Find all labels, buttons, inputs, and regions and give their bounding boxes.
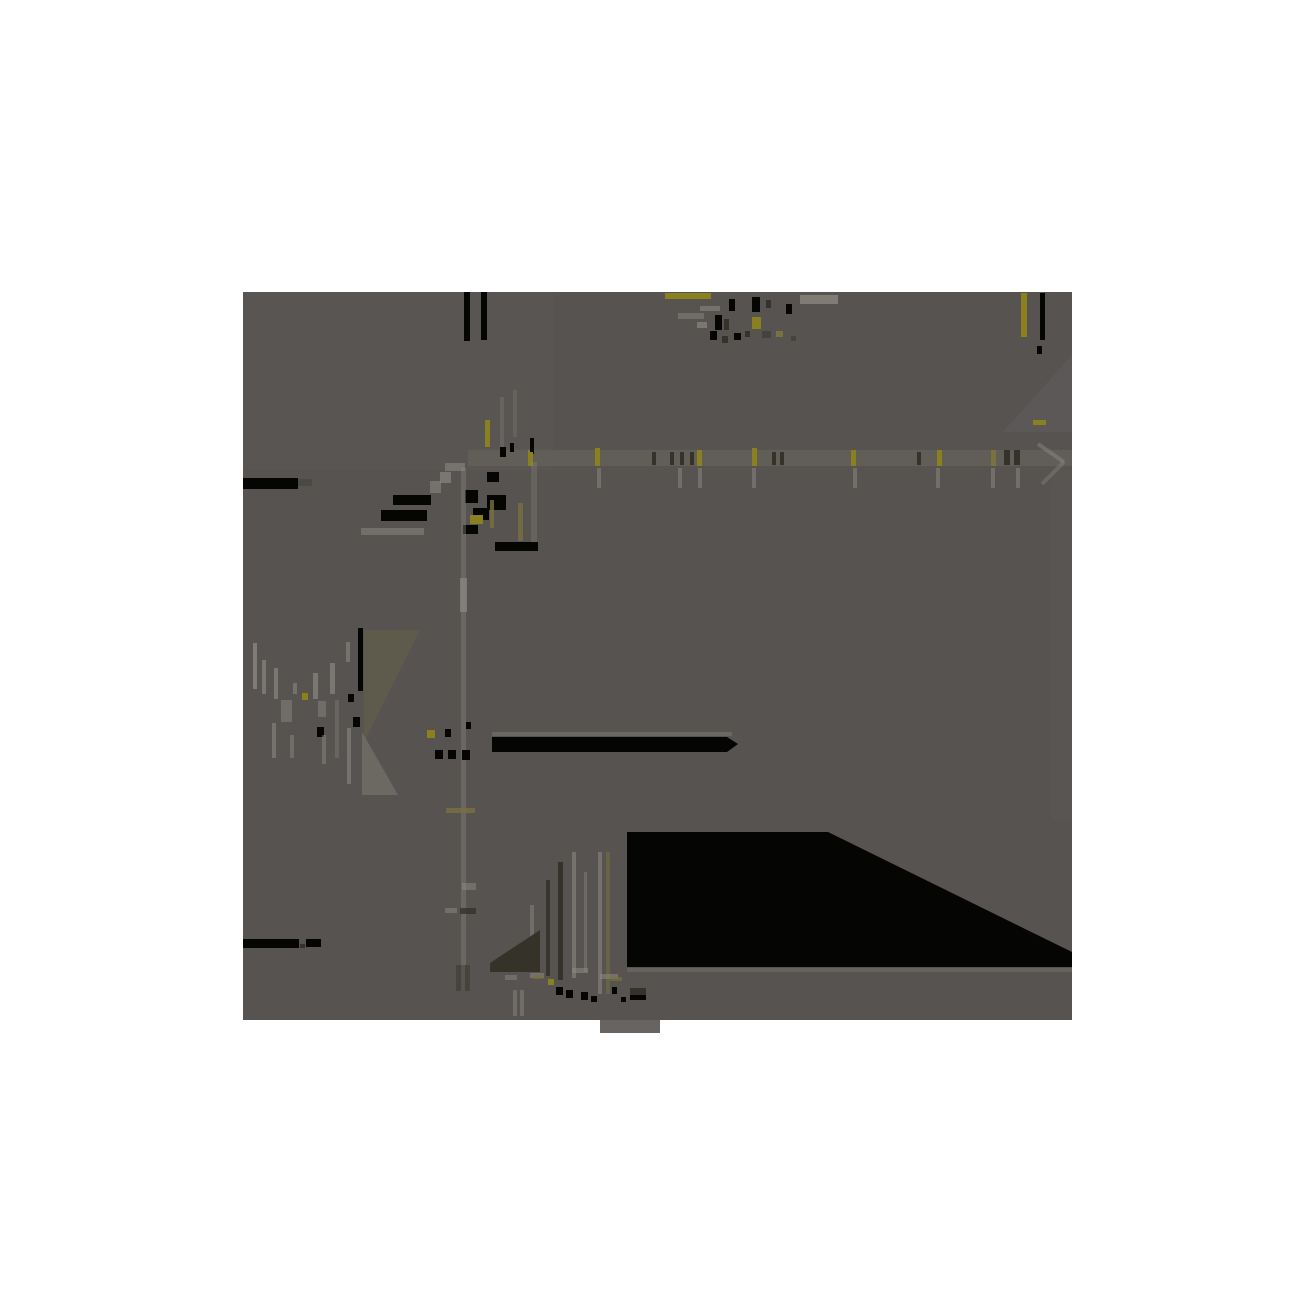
drawing-mark — [584, 872, 587, 972]
drawing-mark — [492, 732, 732, 736]
drawing-mark — [445, 908, 457, 913]
drawing-mark — [776, 331, 783, 337]
drawing-mark — [546, 880, 550, 976]
drawing-mark — [991, 450, 996, 466]
drawing-mark — [786, 304, 792, 314]
drawing-mark — [533, 975, 543, 979]
drawing-mark — [991, 468, 995, 488]
drawing-mark — [766, 300, 771, 308]
drawing-mark — [243, 939, 299, 948]
drawing-mark — [729, 299, 735, 311]
drawing-mark — [272, 723, 276, 758]
drawing-mark — [346, 642, 350, 662]
drawing-mark — [752, 448, 757, 466]
drawing-mark — [300, 944, 305, 948]
drawing-mark — [468, 450, 1072, 466]
drawing-mark — [937, 450, 942, 466]
drawing-mark — [302, 693, 308, 700]
drawing-mark — [558, 862, 563, 980]
drawing-mark — [745, 331, 750, 337]
drawing-mark — [500, 447, 506, 457]
drawing-mark — [752, 297, 760, 312]
drawing-mark — [772, 452, 776, 465]
drawing-mark — [1051, 470, 1072, 820]
drawing-mark — [591, 996, 597, 1002]
drawing-mark — [461, 468, 466, 965]
drawing-mark — [1033, 420, 1046, 425]
drawing-mark — [262, 660, 266, 694]
drawing-mark — [627, 968, 1072, 972]
drawing-mark — [612, 987, 617, 994]
drawing-mark — [791, 336, 796, 341]
drawing-mark — [505, 975, 517, 980]
drawing-mark — [322, 735, 326, 764]
drawing-mark — [460, 908, 476, 914]
drawing-mark — [381, 510, 427, 521]
drawing-mark — [652, 452, 656, 465]
drawing-mark — [1037, 346, 1042, 354]
drawing-mark — [465, 490, 478, 503]
drawing-mark — [393, 495, 431, 505]
drawing-mark — [700, 306, 720, 311]
drawing-mark — [510, 443, 514, 452]
drawing-mark — [581, 992, 588, 1000]
drawing-mark — [460, 578, 467, 612]
drawing-mark — [556, 987, 563, 995]
drawing-mark — [734, 333, 741, 340]
drawing-mark — [427, 730, 435, 738]
drawing-mark — [513, 390, 517, 437]
drawing-mark — [698, 468, 702, 488]
drawing-mark — [487, 472, 499, 482]
drawing-mark — [548, 979, 554, 985]
drawing-mark — [936, 468, 940, 488]
drawing-mark — [462, 750, 470, 760]
drawing-mark — [318, 701, 326, 717]
drawing-mark — [680, 452, 684, 465]
drawing-mark — [330, 663, 335, 694]
drawing-mark — [597, 468, 601, 488]
drawing-mark — [462, 883, 476, 890]
drawing-mark — [435, 750, 443, 759]
drawing-mark — [572, 852, 576, 978]
drawing-mark — [487, 495, 506, 510]
drawing-mark — [485, 420, 490, 447]
drawing-mark — [253, 643, 257, 689]
drawing-mark — [495, 542, 538, 551]
drawing-mark — [298, 479, 312, 486]
drawing-mark — [780, 452, 784, 465]
drawing-mark — [697, 322, 707, 328]
drawing-mark — [361, 528, 424, 535]
drawing-mark — [917, 452, 921, 465]
drawing-mark — [762, 331, 771, 338]
drawing-mark — [1014, 450, 1020, 465]
drawing-mark — [465, 965, 470, 991]
drawing-mark — [630, 995, 646, 1000]
drawing-mark — [610, 977, 622, 981]
drawing-mark — [595, 448, 600, 466]
drawing-mark — [800, 295, 838, 304]
drawing-mark — [281, 700, 292, 722]
drawing-mark — [621, 997, 626, 1002]
drawing-mark — [335, 700, 339, 758]
drawing-mark — [1016, 468, 1020, 488]
drawing-mark — [752, 468, 756, 488]
drawing-mark — [678, 313, 704, 319]
drawing-mark — [466, 722, 471, 729]
drawing-mark — [518, 503, 523, 541]
drawing-mark — [752, 317, 761, 329]
drawing-mark — [851, 450, 856, 466]
structure-drawing — [0, 0, 1316, 1315]
drawing-mark — [348, 694, 354, 702]
drawing-mark — [531, 462, 537, 542]
drawing-mark — [722, 336, 728, 343]
drawing-mark — [566, 990, 573, 998]
drawing-mark — [290, 735, 294, 758]
drawing-mark — [572, 968, 588, 973]
drawing-mark — [715, 315, 722, 330]
drawing-mark — [665, 293, 711, 299]
drawing-mark — [313, 673, 318, 699]
drawing-mark — [470, 515, 483, 524]
drawing-mark — [492, 737, 738, 752]
drawing-mark — [598, 852, 602, 994]
drawing-mark — [448, 750, 456, 759]
drawing-mark — [274, 668, 278, 699]
drawing-mark — [1004, 450, 1010, 465]
drawing-mark — [697, 450, 702, 466]
drawing-mark — [606, 852, 610, 994]
drawing-mark — [513, 990, 517, 1016]
drawing-mark — [670, 452, 674, 465]
drawing-mark — [347, 728, 351, 784]
drawing-mark — [520, 990, 524, 1016]
drawing-mark — [445, 729, 451, 737]
drawing-mark — [243, 292, 553, 470]
drawing-mark — [490, 500, 494, 528]
figure-canvas — [0, 0, 1316, 1315]
drawing-mark — [710, 331, 717, 340]
drawing-mark — [724, 319, 729, 330]
drawing-mark — [353, 717, 360, 727]
drawing-mark — [530, 438, 534, 454]
drawing-mark — [1021, 293, 1027, 337]
drawing-mark — [243, 478, 298, 489]
drawing-mark — [481, 292, 487, 340]
drawing-mark — [678, 468, 682, 488]
drawing-mark — [440, 472, 451, 483]
drawing-mark — [446, 808, 475, 813]
drawing-mark — [293, 683, 297, 694]
drawing-mark — [600, 1020, 660, 1033]
drawing-mark — [430, 481, 441, 493]
drawing-mark — [306, 939, 321, 947]
drawing-mark — [690, 452, 694, 465]
drawing-mark — [464, 292, 470, 341]
drawing-mark — [456, 965, 461, 991]
drawing-mark — [853, 468, 857, 488]
drawing-mark — [358, 628, 363, 691]
drawing-mark — [1040, 293, 1045, 340]
